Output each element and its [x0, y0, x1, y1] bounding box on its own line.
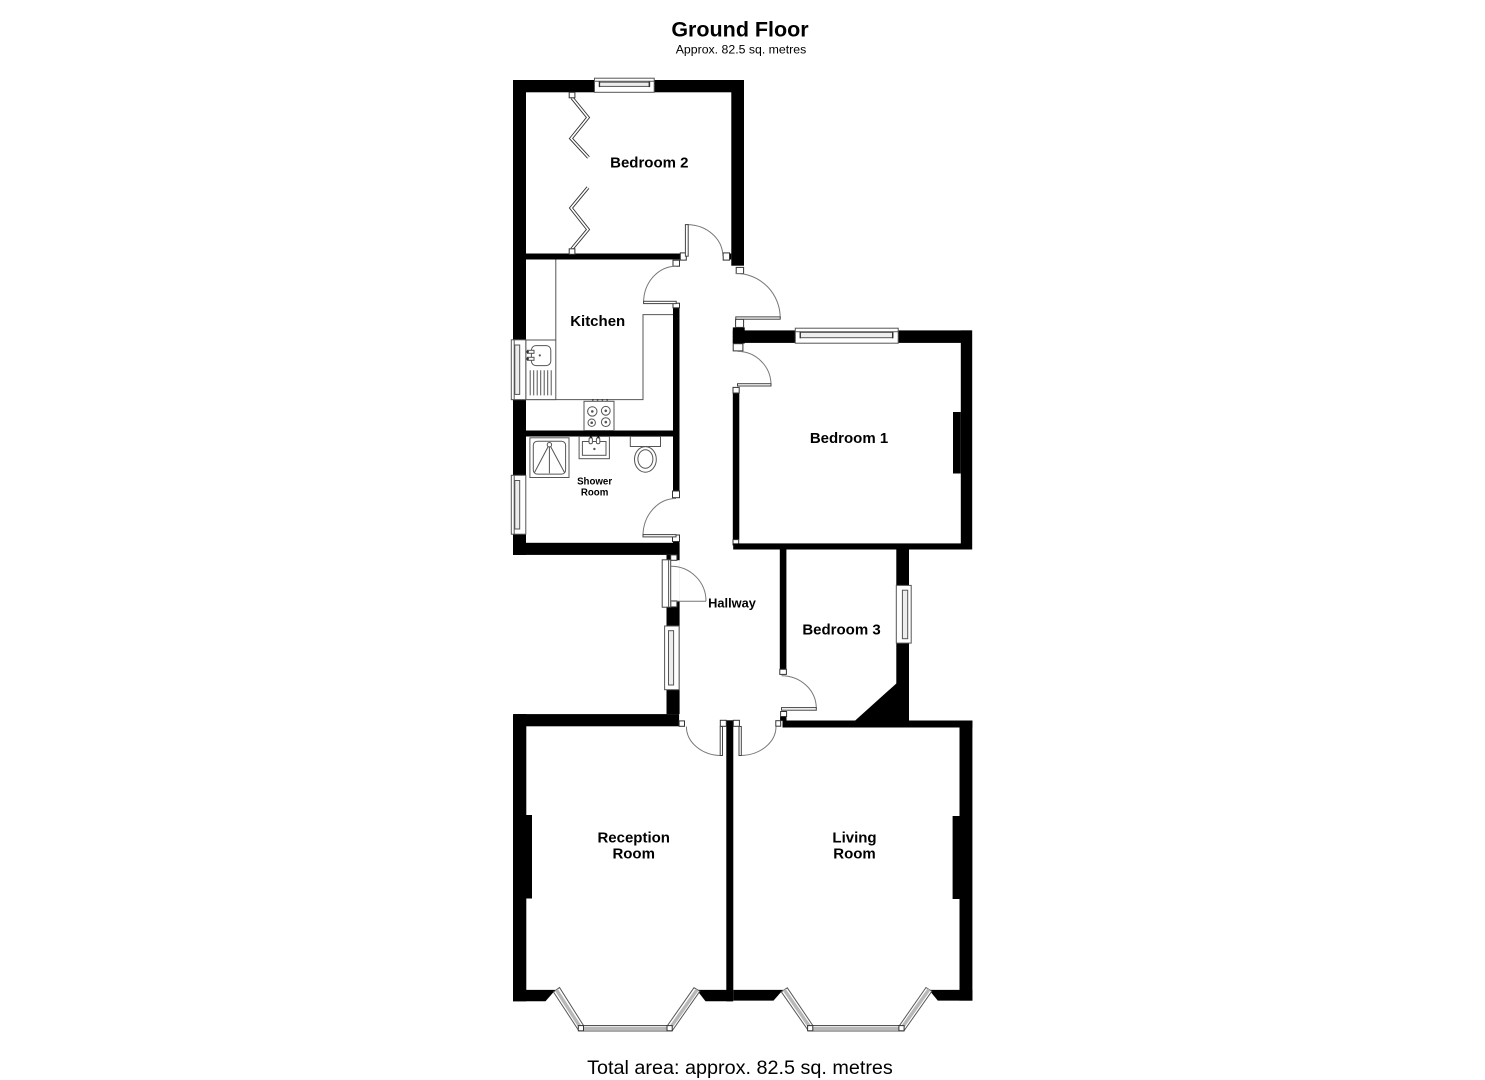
svg-text:Ground Floor: Ground Floor: [671, 18, 809, 42]
svg-text:Bedroom 2: Bedroom 2: [610, 154, 688, 171]
svg-text:Kitchen: Kitchen: [570, 313, 625, 330]
svg-text:Bedroom 3: Bedroom 3: [802, 621, 880, 638]
svg-text:Room: Room: [581, 487, 609, 498]
svg-text:Approx. 82.5 sq. metres: Approx. 82.5 sq. metres: [676, 43, 807, 57]
svg-text:Room: Room: [612, 845, 655, 862]
svg-text:Shower: Shower: [577, 477, 612, 488]
svg-text:Hallway: Hallway: [708, 595, 757, 610]
svg-text:Bedroom 1: Bedroom 1: [810, 430, 888, 447]
svg-text:Reception: Reception: [597, 830, 670, 847]
svg-text:Total area: approx. 82.5 sq. m: Total area: approx. 82.5 sq. metres: [587, 1057, 893, 1079]
svg-text:Living: Living: [832, 830, 876, 847]
svg-text:Room: Room: [833, 845, 876, 862]
